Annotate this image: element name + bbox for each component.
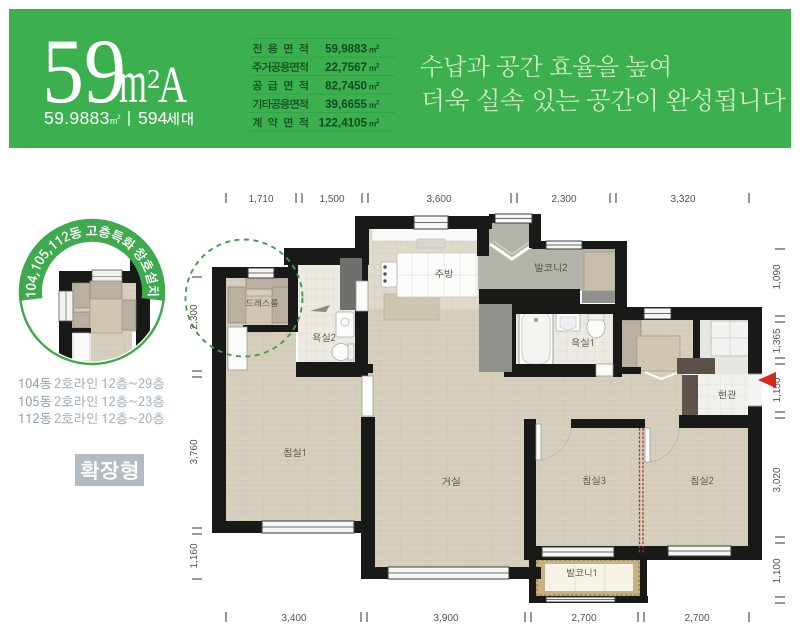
svg-text:3,020: 3,020 — [772, 467, 783, 492]
svg-text:1,365: 1,365 — [772, 328, 783, 353]
svg-text:59,9883: 59,9883 — [325, 43, 367, 56]
svg-text:59: 59 — [42, 20, 126, 122]
svg-text:1,160: 1,160 — [189, 543, 200, 568]
svg-text:22,7567: 22,7567 — [325, 61, 367, 74]
svg-text:82,7450: 82,7450 — [325, 80, 367, 93]
svg-text:3,320: 3,320 — [670, 194, 695, 205]
svg-text:39,6655: 39,6655 — [325, 98, 367, 111]
svg-text:m: m — [119, 49, 147, 115]
svg-text:2,700: 2,700 — [684, 613, 709, 624]
svg-text:3,760: 3,760 — [189, 439, 200, 464]
svg-text:A: A — [158, 57, 187, 114]
svg-text:1,710: 1,710 — [248, 194, 273, 205]
svg-text:3,400: 3,400 — [281, 613, 306, 624]
svg-text:59.9883: 59.9883 — [44, 108, 110, 128]
svg-text:1,090: 1,090 — [772, 264, 783, 289]
svg-text:2,300: 2,300 — [189, 304, 200, 329]
svg-text:1,150: 1,150 — [772, 377, 783, 402]
svg-text:1,100: 1,100 — [772, 558, 783, 583]
svg-text:2,700: 2,700 — [571, 613, 596, 624]
svg-text:2,300: 2,300 — [551, 194, 576, 205]
svg-text:3,600: 3,600 — [426, 194, 451, 205]
svg-text:1,500: 1,500 — [319, 194, 344, 205]
svg-text:2: 2 — [117, 114, 121, 121]
svg-text:122,4105: 122,4105 — [319, 117, 368, 130]
svg-text:3,900: 3,900 — [433, 613, 458, 624]
svg-text:594: 594 — [138, 108, 168, 128]
